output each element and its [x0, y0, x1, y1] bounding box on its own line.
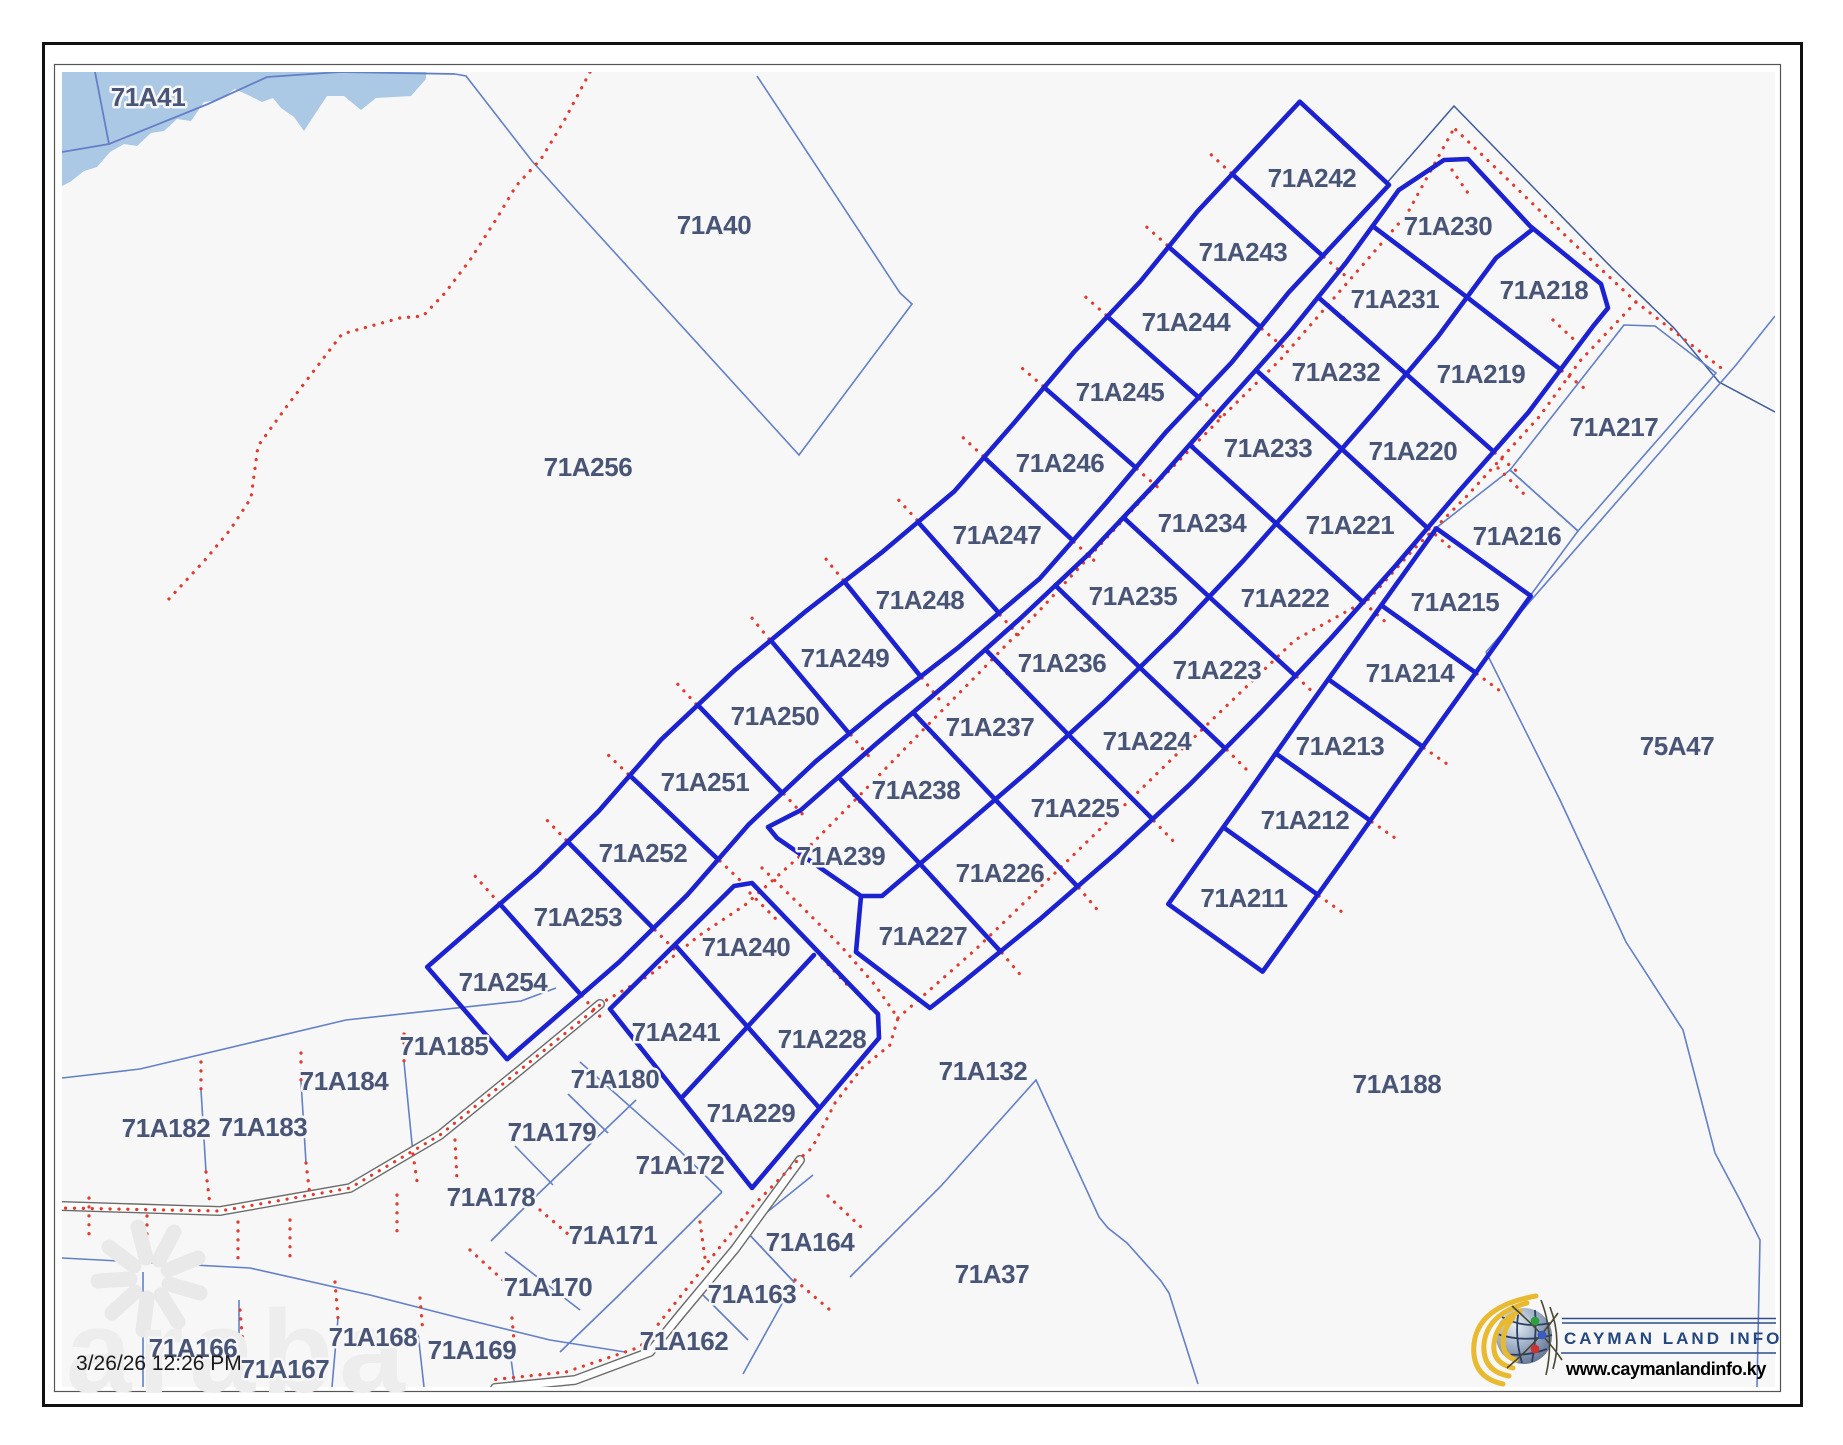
svg-text:CAYMAN LAND INFO: CAYMAN LAND INFO	[1564, 1329, 1782, 1348]
svg-text:www.caymanlandinfo.ky: www.caymanlandinfo.ky	[1565, 1359, 1766, 1379]
svg-text:71A237: 71A237	[946, 712, 1035, 742]
svg-text:71A244: 71A244	[1142, 307, 1232, 337]
svg-text:71A40: 71A40	[677, 210, 752, 240]
svg-text:71A178: 71A178	[447, 1182, 536, 1212]
svg-text:71A231: 71A231	[1351, 284, 1440, 314]
svg-text:71A252: 71A252	[599, 838, 688, 868]
svg-text:71A164: 71A164	[766, 1227, 856, 1257]
svg-text:71A239: 71A239	[797, 841, 886, 871]
svg-text:71A234: 71A234	[1158, 508, 1248, 538]
svg-text:71A41: 71A41	[111, 82, 186, 112]
svg-text:71A185: 71A185	[400, 1031, 489, 1061]
svg-text:71A222: 71A222	[1241, 583, 1330, 613]
svg-text:71A226: 71A226	[956, 858, 1045, 888]
svg-text:71A250: 71A250	[731, 701, 820, 731]
svg-text:71A168: 71A168	[329, 1322, 418, 1352]
svg-text:71A172: 71A172	[636, 1150, 725, 1180]
svg-text:71A221: 71A221	[1306, 510, 1395, 540]
svg-text:71A182: 71A182	[122, 1113, 211, 1143]
svg-text:71A171: 71A171	[569, 1220, 658, 1250]
svg-text:71A224: 71A224	[1103, 726, 1193, 756]
svg-text:71A233: 71A233	[1224, 433, 1313, 463]
svg-text:71A223: 71A223	[1173, 655, 1262, 685]
svg-text:71A220: 71A220	[1369, 436, 1458, 466]
svg-text:71A232: 71A232	[1292, 357, 1381, 387]
svg-text:71A246: 71A246	[1016, 448, 1105, 478]
svg-text:71A212: 71A212	[1261, 805, 1350, 835]
svg-text:71A245: 71A245	[1076, 377, 1165, 407]
svg-text:71A179: 71A179	[508, 1117, 597, 1147]
svg-text:71A132: 71A132	[939, 1056, 1028, 1086]
svg-text:71A248: 71A248	[876, 585, 965, 615]
svg-text:71A213: 71A213	[1296, 731, 1385, 761]
svg-text:71A228: 71A228	[778, 1024, 867, 1054]
svg-text:3/26/26 12:26 PM: 3/26/26 12:26 PM	[76, 1352, 242, 1375]
svg-text:71A214: 71A214	[1366, 658, 1456, 688]
svg-text:71A188: 71A188	[1353, 1069, 1442, 1099]
svg-text:71A227: 71A227	[879, 921, 968, 951]
svg-text:71A253: 71A253	[534, 902, 623, 932]
svg-text:71A249: 71A249	[801, 643, 890, 673]
svg-text:71A229: 71A229	[707, 1098, 796, 1128]
svg-text:71A163: 71A163	[708, 1279, 797, 1309]
svg-text:71A169: 71A169	[428, 1335, 517, 1365]
svg-text:71A184: 71A184	[300, 1066, 390, 1096]
svg-text:71A256: 71A256	[544, 452, 633, 482]
svg-text:71A211: 71A211	[1200, 883, 1287, 913]
svg-text:71A183: 71A183	[219, 1112, 308, 1142]
svg-text:71A225: 71A225	[1031, 793, 1120, 823]
svg-text:71A236: 71A236	[1018, 648, 1107, 678]
svg-text:71A241: 71A241	[632, 1017, 721, 1047]
svg-text:71A162: 71A162	[640, 1326, 729, 1356]
svg-text:75A47: 75A47	[1640, 731, 1715, 761]
svg-text:71A215: 71A215	[1411, 587, 1500, 617]
svg-text:71A235: 71A235	[1089, 581, 1178, 611]
svg-text:71A170: 71A170	[504, 1272, 593, 1302]
svg-text:71A219: 71A219	[1437, 359, 1526, 389]
svg-text:71A243: 71A243	[1199, 237, 1288, 267]
svg-text:71A238: 71A238	[872, 775, 961, 805]
svg-text:71A230: 71A230	[1404, 211, 1493, 241]
svg-text:71A251: 71A251	[661, 767, 750, 797]
svg-text:71A254: 71A254	[459, 967, 549, 997]
svg-text:71A216: 71A216	[1473, 521, 1562, 551]
svg-text:71A217: 71A217	[1570, 412, 1659, 442]
svg-text:71A242: 71A242	[1268, 163, 1357, 193]
svg-text:71A37: 71A37	[955, 1259, 1030, 1289]
svg-text:71A218: 71A218	[1500, 275, 1589, 305]
svg-text:71A247: 71A247	[953, 520, 1042, 550]
svg-text:71A240: 71A240	[702, 932, 791, 962]
svg-text:71A180: 71A180	[571, 1064, 660, 1094]
svg-text:71A167: 71A167	[241, 1354, 330, 1384]
